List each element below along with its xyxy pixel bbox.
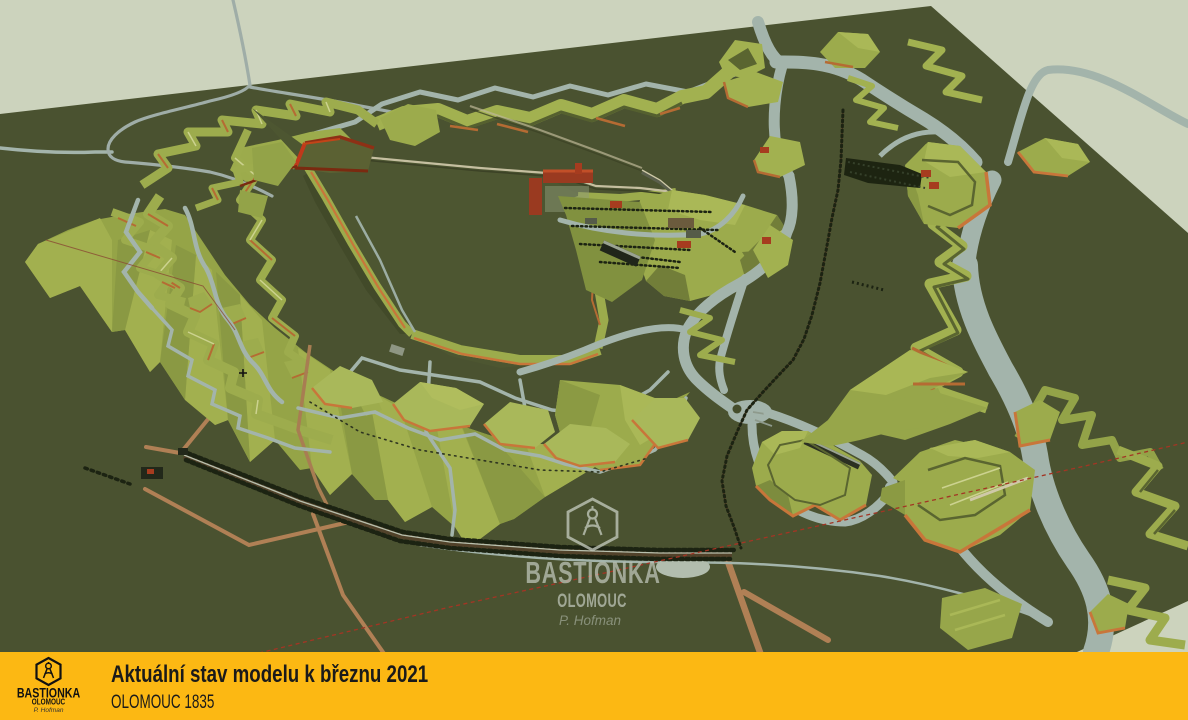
svg-text:Aktuální stav modelu k březnu: Aktuální stav modelu k březnu 2021 [111,661,428,688]
svg-text:OLOMOUC: OLOMOUC [557,589,627,611]
svg-text:OLOMOUC: OLOMOUC [32,697,66,707]
svg-text:P. Hofman: P. Hofman [34,707,64,714]
svg-text:BASTIONKA: BASTIONKA [525,555,660,590]
svg-text:OLOMOUC 1835: OLOMOUC 1835 [111,692,214,713]
svg-text:P. Hofman: P. Hofman [559,613,621,628]
